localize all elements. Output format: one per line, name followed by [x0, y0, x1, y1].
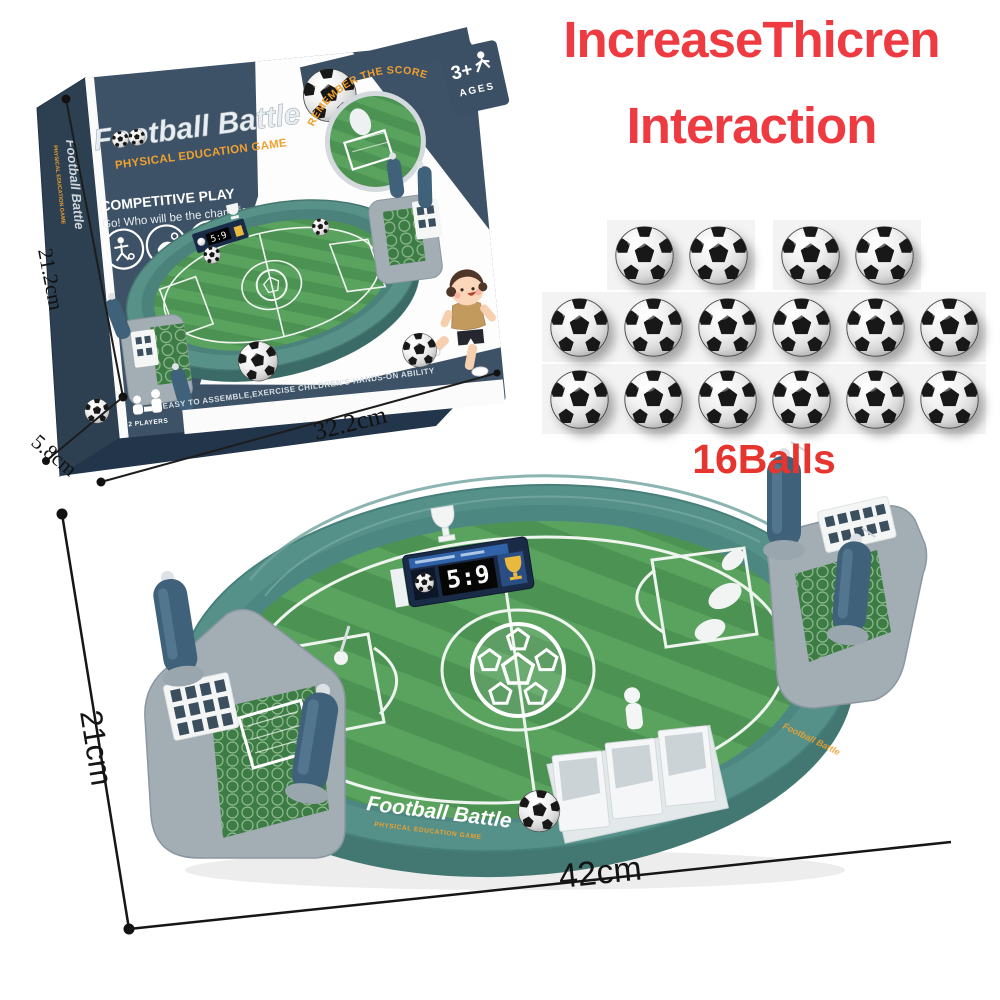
board-width-dim: 42cm	[557, 849, 644, 895]
product-box: Football Battle PHYSICAL EDUCATION GAME …	[27, 24, 539, 487]
soccer-ball	[764, 364, 838, 434]
soccer-ball	[912, 292, 986, 362]
soccer-ball	[912, 364, 986, 434]
soccer-ball	[847, 220, 921, 290]
balls-count-label: 16Balls	[531, 436, 997, 483]
balls-group	[542, 364, 986, 434]
game-board: 5:9	[57, 442, 952, 935]
balls-group	[773, 220, 921, 290]
soccer-ball	[764, 292, 838, 362]
promo-heading-line2: Interaction	[503, 98, 1000, 154]
soccer-ball	[542, 292, 616, 362]
balls-row	[531, 220, 997, 290]
balls-row	[531, 292, 997, 362]
promo-heading: IncreaseThicren Interaction	[503, 12, 1000, 154]
soccer-ball	[542, 364, 616, 434]
balls-group	[607, 220, 755, 290]
board-height-dim: 21cm	[73, 708, 119, 788]
soccer-ball	[838, 364, 912, 434]
white-lever-knob	[334, 651, 348, 665]
promo-heading-line1: IncreaseThicren	[503, 12, 1000, 68]
soccer-ball	[616, 364, 690, 434]
balls-group	[542, 292, 986, 362]
balls-grid	[531, 220, 997, 434]
balls-section: 16Balls	[531, 220, 997, 483]
product-photo: Football Battle PHYSICAL EDUCATION GAME …	[0, 0, 1000, 1000]
box-face: 3+ AGES Football Battle PHYSICAL EDUCATI…	[57, 24, 539, 443]
soccer-ball	[616, 292, 690, 362]
compartment-bay	[658, 726, 716, 807]
soccer-ball	[773, 220, 847, 290]
soccer-ball	[681, 220, 755, 290]
soccer-ball	[690, 364, 764, 434]
compartment-bay	[552, 751, 610, 832]
compartment-bay	[605, 738, 663, 819]
soccer-ball	[838, 292, 912, 362]
soccer-ball	[607, 220, 681, 290]
balls-row	[531, 364, 997, 434]
soccer-ball	[690, 292, 764, 362]
center-ball-graphic	[472, 624, 564, 716]
